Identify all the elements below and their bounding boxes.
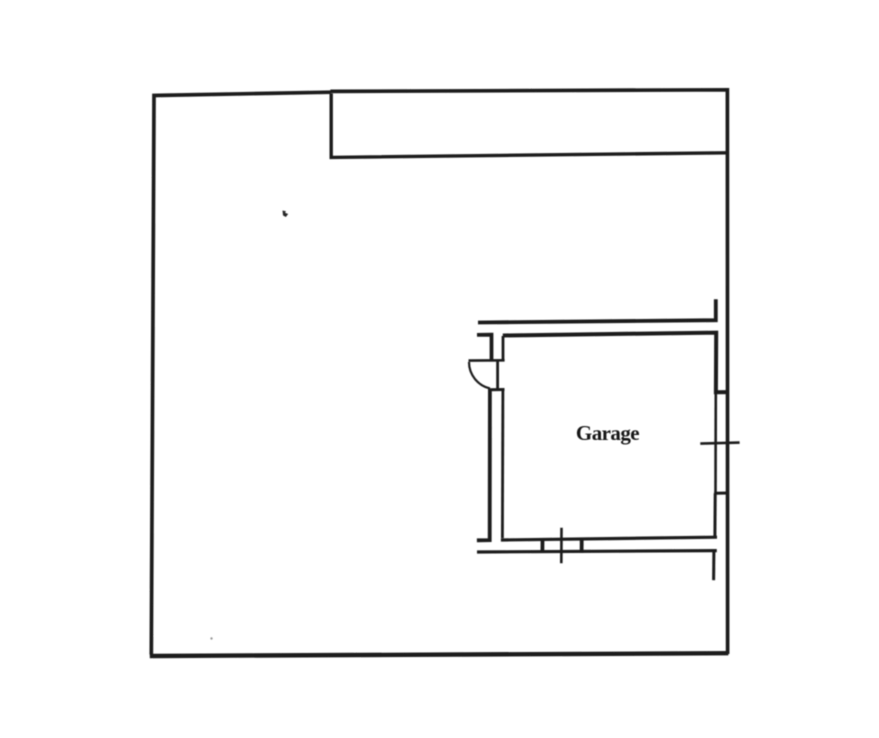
svg-text:Garage: Garage: [576, 421, 639, 445]
